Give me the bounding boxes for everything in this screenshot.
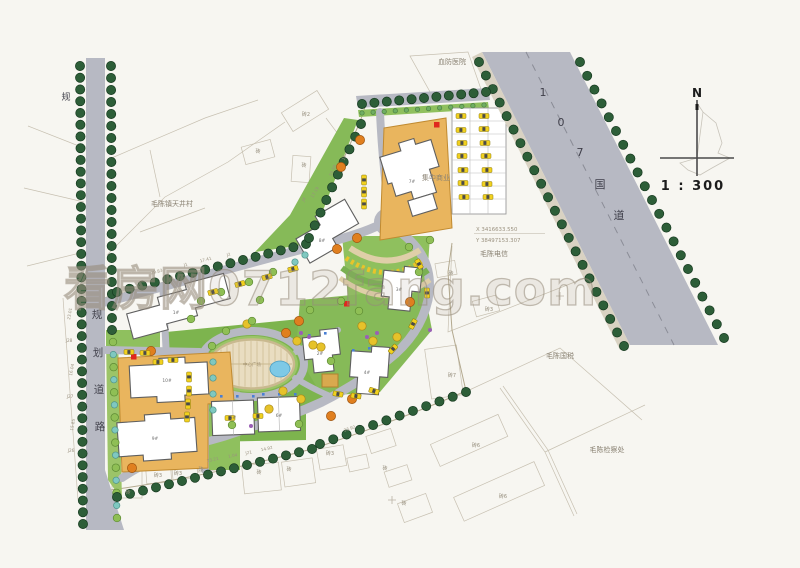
telecom-label: 毛陈电信 bbox=[480, 249, 508, 258]
tree-icon bbox=[107, 313, 116, 322]
plaza-pool bbox=[270, 361, 290, 377]
tree-icon bbox=[297, 395, 305, 403]
tree-icon bbox=[106, 61, 115, 70]
building-number-label: 10# bbox=[162, 378, 172, 384]
car-icon bbox=[168, 358, 178, 363]
car-icon bbox=[482, 182, 492, 187]
tree-icon bbox=[698, 292, 707, 301]
tree-icon bbox=[112, 427, 118, 433]
tree-icon bbox=[110, 388, 118, 396]
tree-icon bbox=[107, 97, 116, 106]
tree-icon bbox=[315, 439, 324, 448]
tree-icon bbox=[619, 140, 628, 149]
car-icon bbox=[482, 168, 492, 173]
tree-icon bbox=[78, 496, 87, 505]
tree-icon bbox=[474, 57, 483, 66]
tree-icon bbox=[352, 233, 361, 242]
tree-icon bbox=[557, 220, 566, 229]
tree-icon bbox=[226, 259, 235, 268]
tree-icon bbox=[256, 296, 264, 304]
village-label: 毛陈镇天井村 bbox=[151, 199, 193, 208]
tree-icon bbox=[495, 98, 504, 107]
central-plaza-label: 中心广场 bbox=[243, 361, 261, 368]
tree-icon bbox=[292, 259, 298, 265]
tree-icon bbox=[537, 179, 546, 188]
national-road-name-char: 7 bbox=[577, 146, 584, 159]
tree-icon bbox=[426, 236, 434, 244]
tree-icon bbox=[77, 367, 86, 376]
car-icon bbox=[362, 187, 367, 197]
coordinate-x: X 3416633.550 bbox=[476, 227, 518, 233]
tree-icon bbox=[216, 467, 225, 476]
tree-icon bbox=[676, 251, 685, 260]
tree-icon bbox=[107, 277, 116, 286]
hospital-label: 血防医院 bbox=[438, 57, 466, 66]
tree-icon bbox=[669, 237, 678, 246]
building-number-label: 4# bbox=[364, 370, 371, 376]
car-icon bbox=[480, 141, 490, 146]
tree-icon bbox=[111, 377, 117, 383]
parcel-label: 砖 bbox=[382, 465, 387, 472]
tree-icon bbox=[295, 420, 303, 428]
tree-icon bbox=[509, 125, 518, 134]
tree-icon bbox=[432, 92, 441, 101]
car-icon bbox=[456, 114, 466, 119]
parcel-label: 砖 bbox=[401, 500, 406, 507]
building-number-label: 7# bbox=[409, 179, 416, 185]
tree-icon bbox=[523, 152, 532, 161]
tree-icon bbox=[332, 244, 341, 253]
tree-icon bbox=[111, 414, 119, 422]
building-number-label: 2# bbox=[317, 351, 324, 357]
tree-icon bbox=[242, 460, 251, 469]
tree-icon bbox=[279, 387, 287, 395]
tree-icon bbox=[435, 397, 444, 406]
tree-icon bbox=[583, 71, 592, 80]
tree-icon bbox=[712, 320, 721, 329]
tree-icon bbox=[355, 425, 364, 434]
tree-icon bbox=[77, 378, 86, 387]
parcel-label: 砖3 bbox=[485, 306, 493, 313]
tree-icon bbox=[77, 332, 86, 341]
tree-icon bbox=[550, 206, 559, 215]
tree-icon bbox=[78, 508, 87, 517]
tree-icon bbox=[77, 355, 86, 364]
tree-icon bbox=[77, 320, 86, 329]
tree-icon bbox=[516, 139, 525, 148]
tree-icon bbox=[662, 223, 671, 232]
tree-icon bbox=[302, 252, 308, 258]
tree-icon bbox=[210, 359, 216, 365]
tree-icon bbox=[78, 519, 87, 528]
tree-icon bbox=[107, 157, 116, 166]
car-icon bbox=[456, 128, 466, 133]
tree-icon bbox=[76, 214, 85, 223]
tree-icon bbox=[222, 327, 230, 335]
tree-icon bbox=[683, 264, 692, 273]
tree-icon bbox=[210, 407, 216, 413]
tree-icon bbox=[78, 461, 87, 470]
car-icon bbox=[424, 288, 429, 298]
tree-icon bbox=[355, 307, 363, 315]
car-icon bbox=[483, 195, 493, 200]
tree-icon bbox=[76, 226, 85, 235]
tree-icon bbox=[245, 278, 253, 286]
tree-icon bbox=[175, 271, 184, 280]
tree-icon bbox=[107, 265, 116, 274]
tree-icon bbox=[382, 109, 386, 113]
car-icon bbox=[479, 127, 489, 132]
tree-icon bbox=[251, 252, 260, 261]
tree-icon bbox=[448, 392, 457, 401]
tree-icon bbox=[337, 297, 345, 305]
tax-office-label: 毛陈国税 bbox=[546, 351, 574, 360]
tree-icon bbox=[393, 109, 397, 113]
tree-icon bbox=[469, 89, 478, 98]
tree-icon bbox=[76, 120, 85, 129]
tree-icon bbox=[107, 193, 116, 202]
car-icon bbox=[457, 154, 467, 159]
car-icon bbox=[481, 154, 491, 159]
national-road-name-char: 国 bbox=[595, 178, 606, 191]
car-icon bbox=[140, 351, 150, 356]
tree-icon bbox=[190, 473, 199, 482]
tree-icon bbox=[107, 229, 116, 238]
parcel-label: 砖 bbox=[448, 270, 453, 277]
tree-icon bbox=[482, 103, 486, 107]
tree-icon bbox=[106, 85, 115, 94]
tree-icon bbox=[107, 181, 116, 190]
parcel-label: 砖2 bbox=[302, 111, 310, 118]
tree-icon bbox=[322, 195, 331, 204]
tree-icon bbox=[112, 287, 121, 296]
tree-icon bbox=[238, 255, 247, 264]
tree-icon bbox=[77, 308, 86, 317]
tree-icon bbox=[78, 472, 87, 481]
car-icon bbox=[458, 181, 468, 186]
tree-icon bbox=[612, 328, 621, 337]
tree-icon bbox=[107, 253, 116, 262]
tree-icon bbox=[422, 402, 431, 411]
tree-icon bbox=[111, 439, 119, 447]
tree-icon bbox=[691, 278, 700, 287]
tree-icon bbox=[107, 133, 116, 142]
tree-icon bbox=[76, 202, 85, 211]
tree-icon bbox=[177, 476, 186, 485]
tree-icon bbox=[640, 182, 649, 191]
tree-icon bbox=[358, 322, 366, 330]
tree-icon bbox=[228, 421, 236, 429]
parcel-label: 砖 bbox=[301, 162, 306, 169]
tree-icon bbox=[77, 285, 86, 294]
tree-icon bbox=[599, 301, 608, 310]
tree-icon bbox=[460, 104, 464, 108]
tree-icon bbox=[404, 108, 408, 112]
tree-icon bbox=[604, 113, 613, 122]
tree-icon bbox=[76, 144, 85, 153]
tree-icon bbox=[571, 247, 580, 256]
planned-road-west-char: 规 bbox=[61, 92, 70, 103]
tree-icon bbox=[77, 343, 86, 352]
tree-icon bbox=[336, 162, 345, 171]
tree-icon bbox=[203, 470, 212, 479]
tree-icon bbox=[393, 333, 401, 341]
tree-icon bbox=[265, 405, 273, 413]
tree-icon bbox=[78, 402, 87, 411]
tree-icon bbox=[107, 145, 116, 154]
tree-icon bbox=[530, 166, 539, 175]
tree-icon bbox=[76, 108, 85, 117]
planned-road-name-char: 划 bbox=[93, 346, 104, 359]
tree-icon bbox=[268, 454, 277, 463]
tree-icon bbox=[113, 477, 119, 483]
building-number-label: 8# bbox=[319, 238, 326, 244]
tree-icon bbox=[461, 387, 470, 396]
tree-icon bbox=[307, 444, 316, 453]
tree-icon bbox=[110, 351, 116, 357]
tree-icon bbox=[360, 111, 364, 115]
tree-icon bbox=[655, 209, 664, 218]
car-icon bbox=[458, 168, 468, 173]
car-icon bbox=[459, 195, 469, 200]
tree-icon bbox=[107, 301, 116, 310]
parcel-label: 砖 bbox=[255, 148, 260, 155]
tree-icon bbox=[188, 268, 197, 277]
parcel-label: 砖3 bbox=[174, 470, 182, 477]
building-number-label: 9# bbox=[152, 436, 159, 442]
site-plan-map: N 1 : 300 X 3416633.550 Y 38497153.307 规… bbox=[0, 0, 800, 568]
tree-icon bbox=[112, 492, 121, 501]
tree-icon bbox=[213, 262, 222, 271]
tree-icon bbox=[75, 73, 84, 82]
tree-icon bbox=[187, 315, 195, 323]
car-icon bbox=[457, 141, 467, 146]
tree-icon bbox=[281, 451, 290, 460]
north-label: N bbox=[692, 86, 702, 100]
tree-icon bbox=[229, 464, 238, 473]
tree-icon bbox=[77, 261, 86, 270]
building-number-label: 3# bbox=[396, 287, 403, 293]
parcel-label: 砖 bbox=[286, 466, 291, 473]
parcel-label: 砖3 bbox=[326, 450, 334, 457]
tree-icon bbox=[127, 463, 136, 472]
tree-icon bbox=[110, 363, 118, 371]
car-icon bbox=[253, 414, 263, 419]
tree-icon bbox=[248, 317, 256, 325]
tree-icon bbox=[125, 284, 134, 293]
parcel-label: 砖 bbox=[125, 489, 130, 496]
tree-icon bbox=[310, 221, 319, 230]
building-number-label: 5# bbox=[230, 415, 237, 421]
tree-icon bbox=[597, 99, 606, 108]
tree-icon bbox=[543, 193, 552, 202]
tree-icon bbox=[408, 406, 417, 415]
tree-icon bbox=[77, 296, 86, 305]
parcel-label: 砖6 bbox=[499, 493, 507, 500]
tree-icon bbox=[481, 87, 490, 96]
tree-icon bbox=[78, 414, 87, 423]
tree-icon bbox=[163, 275, 172, 284]
tree-icon bbox=[592, 287, 601, 296]
car-icon bbox=[479, 114, 489, 119]
tree-icon bbox=[719, 333, 728, 342]
parcel-label: 砖6 bbox=[472, 442, 480, 449]
tree-icon bbox=[647, 195, 656, 204]
tree-icon bbox=[633, 168, 642, 177]
car-icon bbox=[153, 360, 163, 365]
tree-icon bbox=[264, 249, 273, 258]
tree-icon bbox=[426, 106, 430, 110]
tree-icon bbox=[76, 155, 85, 164]
scale-label: 1 : 300 bbox=[661, 179, 725, 194]
tree-icon bbox=[328, 183, 337, 192]
site-plan: N 1 : 300 X 3416633.550 Y 38497153.307 规… bbox=[0, 0, 800, 568]
tree-icon bbox=[138, 486, 147, 495]
survey-label: J26 bbox=[67, 448, 75, 453]
tree-icon bbox=[76, 167, 85, 176]
tree-icon bbox=[76, 132, 85, 141]
tree-icon bbox=[585, 274, 594, 283]
parcel-label: 砖3 bbox=[154, 472, 162, 479]
tree-icon bbox=[419, 93, 428, 102]
tree-icon bbox=[407, 95, 416, 104]
tree-icon bbox=[395, 411, 404, 420]
parcel-label: 砖 bbox=[256, 469, 261, 476]
tree-icon bbox=[281, 328, 290, 337]
tree-icon bbox=[457, 90, 466, 99]
car-icon bbox=[187, 372, 192, 382]
tree-icon bbox=[76, 191, 85, 200]
car-icon bbox=[351, 393, 362, 399]
tree-icon bbox=[327, 357, 335, 365]
tree-icon bbox=[76, 97, 85, 106]
tree-icon bbox=[382, 97, 391, 106]
tree-icon bbox=[75, 61, 84, 70]
tree-icon bbox=[150, 278, 159, 287]
tree-icon bbox=[368, 420, 377, 429]
survey-label: J27 bbox=[66, 394, 74, 399]
tree-icon bbox=[107, 169, 116, 178]
tree-icon bbox=[382, 416, 391, 425]
tree-icon bbox=[294, 448, 303, 457]
tree-icon bbox=[197, 297, 205, 305]
tree-icon bbox=[293, 337, 301, 345]
planned-road-name-char: 路 bbox=[95, 420, 106, 433]
tree-icon bbox=[107, 241, 116, 250]
tree-icon bbox=[304, 233, 313, 242]
tree-icon bbox=[294, 316, 303, 325]
tree-icon bbox=[107, 109, 116, 118]
car-icon bbox=[187, 386, 192, 396]
tree-icon bbox=[437, 106, 441, 110]
tree-icon bbox=[357, 99, 366, 108]
car-icon bbox=[362, 175, 367, 185]
tree-icon bbox=[449, 105, 453, 109]
tree-icon bbox=[329, 435, 338, 444]
clubhouse bbox=[322, 374, 338, 387]
tree-icon bbox=[109, 338, 117, 346]
tree-icon bbox=[326, 411, 335, 420]
tree-icon bbox=[619, 341, 628, 350]
tree-icon bbox=[111, 402, 117, 408]
tree-icon bbox=[590, 85, 599, 94]
tree-icon bbox=[471, 104, 475, 108]
tree-icon bbox=[78, 437, 87, 446]
tree-icon bbox=[78, 425, 87, 434]
tree-icon bbox=[481, 71, 490, 80]
tree-icon bbox=[78, 390, 87, 399]
parcel-label: 砖 bbox=[198, 466, 203, 473]
tree-icon bbox=[356, 119, 365, 128]
tree-icon bbox=[208, 342, 216, 350]
survey-label: J28 bbox=[65, 338, 73, 343]
tree-icon bbox=[107, 217, 116, 226]
tree-icon bbox=[705, 306, 714, 315]
tree-icon bbox=[113, 514, 121, 522]
tree-icon bbox=[107, 205, 116, 214]
car-icon bbox=[362, 199, 367, 209]
tree-icon bbox=[164, 480, 173, 489]
tree-icon bbox=[345, 145, 354, 154]
tree-icon bbox=[77, 249, 86, 258]
tree-icon bbox=[395, 96, 404, 105]
tree-icon bbox=[578, 260, 587, 269]
tree-icon bbox=[276, 246, 285, 255]
tree-icon bbox=[309, 341, 317, 349]
car-icon bbox=[186, 399, 191, 409]
tree-icon bbox=[112, 452, 118, 458]
national-road-name-char: 0 bbox=[558, 116, 565, 129]
tree-icon bbox=[77, 238, 86, 247]
tree-icon bbox=[564, 233, 573, 242]
tree-icon bbox=[575, 57, 584, 66]
tree-icon bbox=[210, 375, 216, 381]
tree-icon bbox=[138, 281, 147, 290]
tree-icon bbox=[76, 85, 85, 94]
tree-icon bbox=[606, 314, 615, 323]
tree-icon bbox=[611, 126, 620, 135]
tree-icon bbox=[77, 273, 86, 282]
tree-icon bbox=[355, 135, 364, 144]
national-road-name-char: 道 bbox=[614, 208, 625, 222]
procuratorate-label: 毛陈检察处 bbox=[590, 445, 625, 454]
tree-icon bbox=[371, 110, 375, 114]
coordinate-y: Y 38497153.307 bbox=[475, 238, 520, 244]
tree-icon bbox=[405, 297, 414, 306]
tree-icon bbox=[201, 265, 210, 274]
parcel-label: 砖7 bbox=[448, 372, 456, 379]
tree-icon bbox=[317, 343, 325, 351]
tree-icon bbox=[415, 107, 419, 111]
national-road-name-char: 1 bbox=[540, 86, 547, 99]
tree-icon bbox=[255, 457, 264, 466]
building-number-label: 1# bbox=[173, 310, 180, 316]
tree-icon bbox=[210, 391, 216, 397]
tree-icon bbox=[444, 91, 453, 100]
car-icon bbox=[124, 350, 134, 355]
planned-road-name-char: 规 bbox=[92, 308, 103, 321]
tree-icon bbox=[316, 208, 325, 217]
tree-icon bbox=[78, 484, 87, 493]
tree-icon bbox=[114, 502, 120, 508]
commercial-label: 集中商业 bbox=[422, 173, 450, 182]
car-icon bbox=[185, 412, 190, 422]
tree-icon bbox=[306, 306, 314, 314]
tree-icon bbox=[76, 179, 85, 188]
tree-icon bbox=[626, 154, 635, 163]
building-number-label: 6# bbox=[276, 413, 283, 419]
tree-icon bbox=[106, 73, 115, 82]
